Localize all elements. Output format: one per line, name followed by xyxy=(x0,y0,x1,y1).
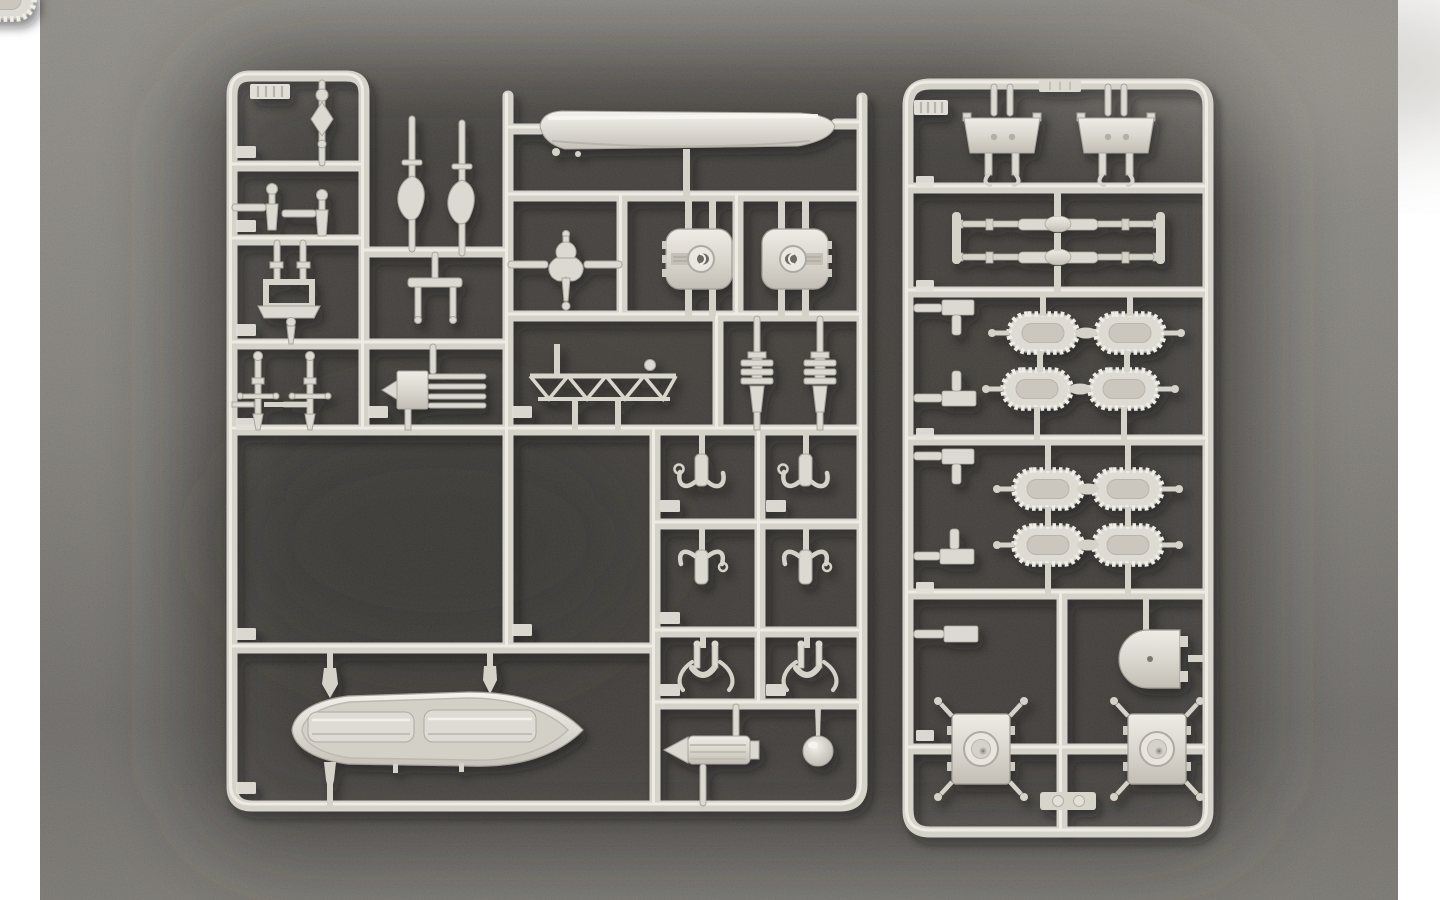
part-carley-float-4 xyxy=(1090,370,1158,408)
part-carley-float-6 xyxy=(1094,470,1162,508)
boat-hull-highlight xyxy=(548,116,818,118)
part-carley-float-1 xyxy=(1009,314,1077,352)
part-carley-float-5 xyxy=(1014,470,1082,508)
boat-hull-nub xyxy=(575,151,581,157)
right-sprue-bottom-tab xyxy=(1040,792,1096,810)
part-carley-float-3 xyxy=(1003,370,1071,408)
boat-hull-nub xyxy=(552,148,560,156)
boat-hull-gate-stub xyxy=(683,149,690,196)
d-turret-hole xyxy=(1147,656,1153,662)
mast-link-stub xyxy=(264,402,310,407)
turret-base-pin-hole xyxy=(982,750,985,753)
whaleboat-cover-aft xyxy=(308,712,414,742)
right-sprue-label-tab xyxy=(914,100,948,115)
right-sprue-top-tab xyxy=(1039,80,1081,92)
part-carley-float-8 xyxy=(1094,526,1162,564)
whaleboat-cover-fore xyxy=(424,710,536,742)
photo-of-model-kit-sprues xyxy=(0,0,1440,900)
left-sprue-label-tab xyxy=(250,84,290,99)
part-carley-float-7 xyxy=(1014,526,1082,564)
sprue-photo-canvas xyxy=(0,0,1440,900)
part-carley-float-2 xyxy=(1096,314,1164,352)
sphere-highlight xyxy=(808,742,818,749)
